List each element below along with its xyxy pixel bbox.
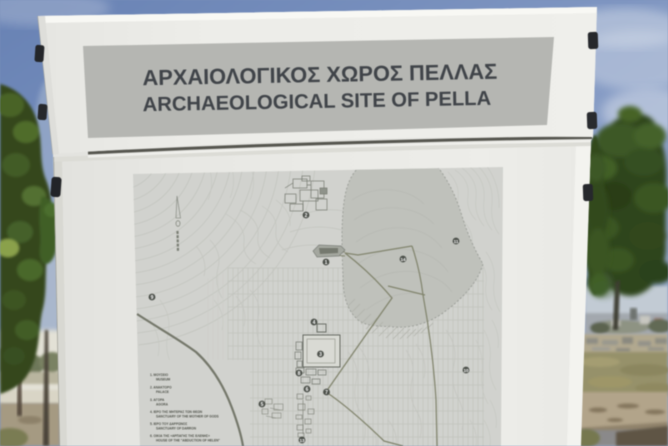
svg-text:SANCTUARY OF DARRON: SANCTUARY OF DARRON [156,427,197,431]
svg-text:8: 8 [298,371,301,377]
svg-text:1. ΜΟΥΣΕΙΟ: 1. ΜΟΥΣΕΙΟ [150,373,169,377]
svg-text:2. ΑΝΑΚΤΟΡΟ: 2. ΑΝΑΚΤΟΡΟ [150,386,172,390]
svg-text:6. ΟΙΚΙΑ ΤΗΣ «ΑΡΠΑΓΗΣ ΤΗΣ ΕΛΕ: 6. ΟΙΚΙΑ ΤΗΣ «ΑΡΠΑΓΗΣ ΤΗΣ ΕΛΕΝΗΣ» [150,434,210,438]
svg-text:HOUSE OF THE "ABDUCTION OF HEL: HOUSE OF THE "ABDUCTION OF HELEN" [156,439,220,443]
svg-text:11: 11 [454,239,459,244]
svg-text:7: 7 [325,390,328,396]
svg-text:5: 5 [261,402,264,408]
svg-text:6: 6 [306,387,309,393]
svg-text:4: 4 [313,320,316,326]
svg-text:3. ΑΓΟΡΑ: 3. ΑΓΟΡΑ [150,398,165,402]
svg-text:10: 10 [463,368,469,373]
svg-text:SANCTUARY OF THE MOTHER OF GO: SANCTUARY OF THE MOTHER OF GODS [156,415,219,419]
svg-text:AGORA: AGORA [156,403,169,407]
svg-text:4. ΙΕΡΟ ΤΗΣ ΜΗΤΕΡΑΣ ΤΩΝ ΘΕΩΝ: 4. ΙΕΡΟ ΤΗΣ ΜΗΤΕΡΑΣ ΤΩΝ ΘΕΩΝ [150,410,203,414]
svg-text:3: 3 [319,352,322,358]
svg-text:MUSEUM: MUSEUM [156,378,171,382]
svg-text:14: 14 [400,257,406,262]
svg-text:13: 13 [299,438,305,443]
svg-text:9: 9 [151,295,154,301]
svg-text:PALACE: PALACE [156,390,169,394]
svg-text:2: 2 [305,213,308,219]
svg-text:1: 1 [325,260,328,266]
svg-text:5. ΙΕΡΟ ΤΟΥ ΔΑΡΡΩΝΟΣ: 5. ΙΕΡΟ ΤΟΥ ΔΑΡΡΩΝΟΣ [150,422,187,426]
